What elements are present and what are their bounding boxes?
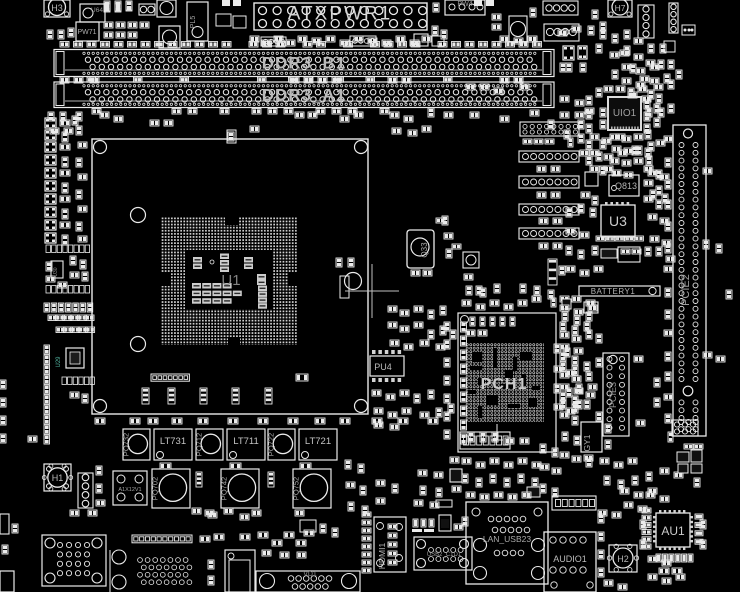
svg-text:PQ722: PQ722: [267, 433, 276, 456]
svg-text:PQ742: PQ742: [220, 477, 229, 500]
svg-text:BATTERY1: BATTERY1: [591, 287, 636, 296]
svg-text:AU1: AU1: [661, 524, 685, 538]
svg-text:PCH1: PCH1: [481, 376, 528, 393]
svg-text:DDR3_B1: DDR3_B1: [262, 54, 346, 73]
svg-text:VD1: VD1: [303, 571, 317, 578]
svg-text:H3: H3: [51, 3, 63, 13]
svg-text:UIO1: UIO1: [613, 108, 637, 119]
svg-text:PCIE2: PCIE2: [680, 274, 692, 306]
svg-text:PU4: PU4: [374, 362, 392, 372]
svg-text:U30: U30: [53, 267, 59, 276]
svg-text:PQ732: PQ732: [122, 433, 131, 456]
svg-text:U64: U64: [91, 7, 103, 14]
svg-text:PQ752: PQ752: [292, 477, 301, 500]
svg-text:U3: U3: [609, 213, 627, 229]
svg-text:DDR3_A1: DDR3_A1: [262, 85, 346, 104]
svg-text:H1: H1: [52, 473, 64, 483]
svg-text:U1: U1: [221, 272, 240, 289]
svg-text:USB2_C1D1: USB2_C1D1: [427, 552, 462, 558]
svg-text:LT721: LT721: [305, 436, 331, 447]
svg-text:H2: H2: [617, 554, 629, 564]
svg-text:ATXPWR1: ATXPWR1: [288, 4, 392, 25]
svg-text:H7: H7: [615, 3, 626, 13]
svg-text:LT731: LT731: [160, 436, 186, 447]
svg-text:Q33: Q33: [420, 242, 429, 258]
svg-text:HDMI1: HDMI1: [377, 543, 387, 570]
svg-text:Q813: Q813: [615, 181, 637, 191]
svg-text:PW71: PW71: [77, 29, 96, 36]
svg-text:U29: U29: [56, 356, 62, 368]
svg-text:PW4: PW4: [457, 1, 472, 8]
svg-text:AUDIO1: AUDIO1: [553, 554, 587, 564]
svg-text:PQ702: PQ702: [151, 477, 160, 500]
svg-text:LT711: LT711: [233, 436, 259, 447]
svg-text:GY1: GY1: [582, 434, 592, 451]
svg-text:PQ712: PQ712: [195, 433, 204, 456]
svg-text:LAN_USB23: LAN_USB23: [483, 534, 531, 544]
svg-text:PCIE3: PCIE3: [608, 382, 618, 408]
svg-text:A1X12V1: A1X12V1: [118, 487, 141, 493]
svg-text:PL5: PL5: [190, 16, 197, 29]
